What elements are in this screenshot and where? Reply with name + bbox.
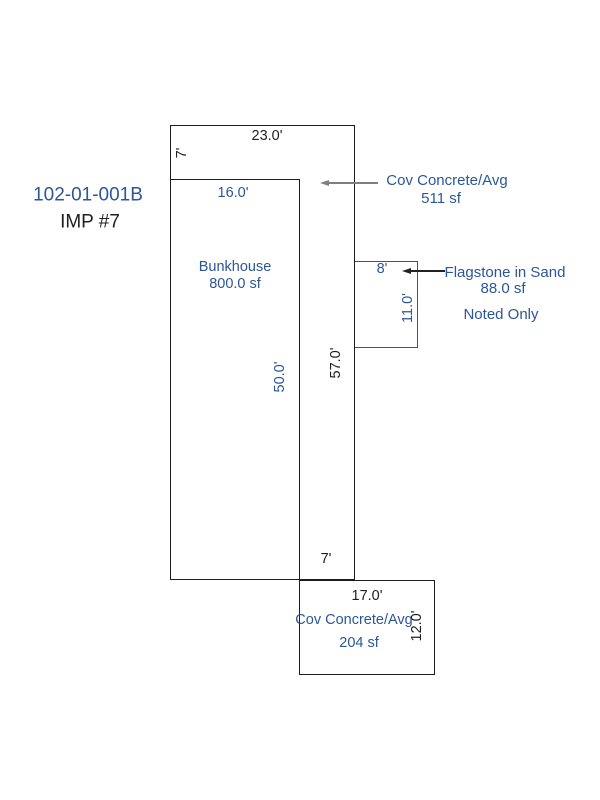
cov-concrete-attached-area-label: 511 sf bbox=[421, 191, 461, 208]
outer-right-dim-label: 57.0' bbox=[329, 348, 345, 379]
top-strip-divider-line bbox=[170, 179, 300, 180]
flagstone-note-label: Noted Only bbox=[463, 307, 538, 324]
improvement-label: IMP #7 bbox=[60, 213, 120, 234]
cov-concrete-arrow-line bbox=[329, 182, 378, 183]
outer-top-dim-label: 23.0' bbox=[252, 129, 283, 145]
flagstone-area-label: 88.0 sf bbox=[480, 281, 525, 298]
detached-top-dim-label: 17.0' bbox=[352, 589, 383, 605]
property-sketch: 102-01-001B IMP #7 23.0' 7' 57.0' 7' 16.… bbox=[0, 0, 600, 800]
bunkhouse-right-dim-label: 50.0' bbox=[273, 362, 289, 393]
flagstone-arrow-line bbox=[411, 270, 445, 271]
detached-right-dim-label: 12.0' bbox=[410, 611, 426, 642]
parcel-id-label: 102-01-001B bbox=[33, 186, 143, 207]
bunkhouse-area-label: 800.0 sf bbox=[209, 277, 261, 293]
bunkhouse-right-wall-line bbox=[299, 180, 300, 580]
flagstone-right-dim-label: 11.0' bbox=[401, 293, 417, 323]
cov-concrete-detached-name-label: Cov Concrete/Avg bbox=[295, 613, 412, 629]
flagstone-arrowhead-icon bbox=[402, 268, 411, 274]
cov-concrete-arrowhead-icon bbox=[320, 180, 329, 186]
outer-left-dim-label: 7' bbox=[175, 148, 191, 159]
bunkhouse-name-label: Bunkhouse bbox=[199, 260, 272, 276]
outer-bottom-dim-label: 7' bbox=[321, 552, 332, 568]
flagstone-top-dim-label: 8' bbox=[377, 262, 388, 278]
cov-concrete-detached-area-label: 204 sf bbox=[339, 636, 379, 652]
bunkhouse-top-dim-label: 16.0' bbox=[218, 186, 249, 202]
cov-concrete-attached-name-label: Cov Concrete/Avg bbox=[386, 173, 507, 190]
